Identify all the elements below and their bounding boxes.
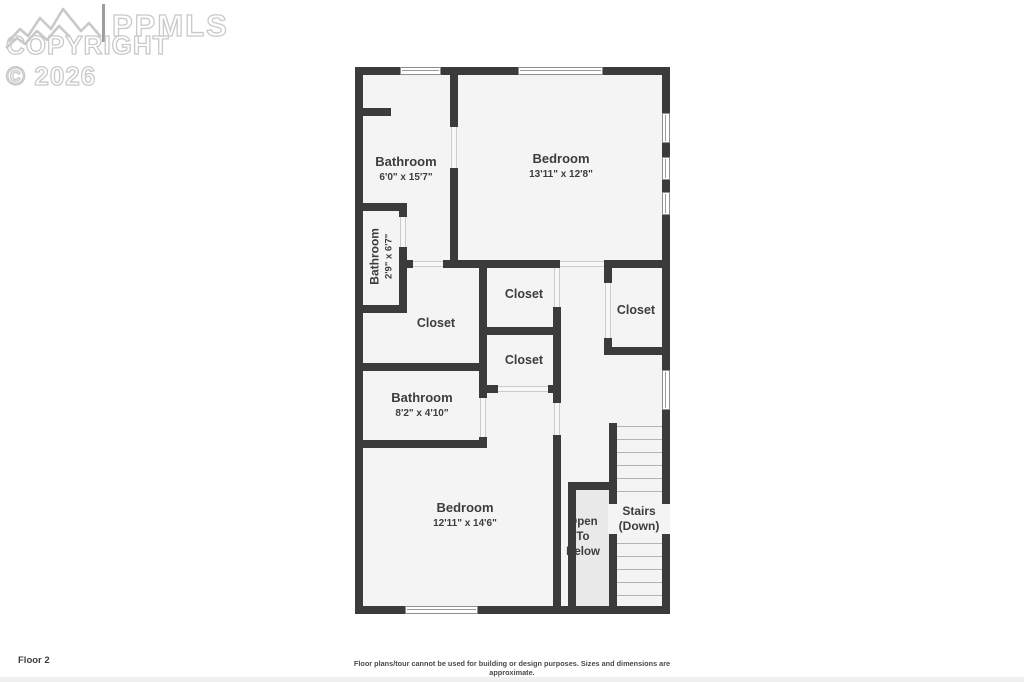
room-label-bedroom-top: Bedroom 13'11" x 12'8" [501, 152, 621, 180]
room-label-stairs: Stairs (Down) [608, 504, 670, 534]
wall-segment [355, 67, 363, 614]
window [518, 67, 603, 75]
wall-segment [399, 247, 407, 313]
door-opening [413, 261, 443, 267]
window [662, 113, 670, 143]
window [662, 157, 670, 180]
wall-segment [443, 260, 560, 268]
room-dimensions: 2'9" x 6'7" [384, 211, 395, 301]
room-label-closet-right: Closet [596, 303, 676, 317]
room-dimensions: 8'2" x 4'10" [362, 408, 482, 420]
door-opening [554, 403, 560, 435]
bottom-strip [0, 677, 1024, 682]
room-label-bathroom-top: Bathroom 6'0" x 15'7" [346, 155, 466, 183]
room-name: Bedroom [501, 152, 621, 167]
room-label-closet-top-middle: Closet [484, 287, 564, 301]
wall-segment [450, 75, 458, 127]
wall-segment [548, 385, 561, 393]
wall-segment [355, 108, 391, 116]
room-name: Bedroom [405, 501, 525, 516]
window [662, 370, 670, 410]
wall-segment [479, 327, 561, 335]
room-dimensions: 6'0" x 15'7" [346, 172, 466, 184]
room-name: Bathroom [362, 391, 482, 406]
disclaimer-text: Floor plans/tour cannot be used for buil… [347, 659, 677, 677]
door-opening [498, 386, 548, 392]
window [662, 192, 670, 215]
wall-segment [604, 263, 612, 283]
room-label-closet-left: Closet [396, 316, 476, 330]
room-dimensions: 12'11" x 14'6" [405, 518, 525, 530]
wall-segment [355, 440, 487, 448]
stairs-line: (Down) [608, 519, 670, 534]
wall-segment [355, 305, 407, 313]
room-label-bathroom-lower: Bathroom 8'2" x 4'10" [362, 391, 482, 419]
room-dimensions: 13'11" x 12'8" [501, 169, 621, 181]
room-label-bathroom-small: Bathroom 2'9" x 6'7" [369, 211, 396, 301]
window [400, 67, 441, 75]
stairs-line: Stairs [608, 504, 670, 519]
open-to-below-line: Below [553, 545, 613, 560]
wall-segment [355, 606, 670, 614]
open-to-below-line: Open [553, 515, 613, 530]
door-opening [400, 217, 406, 247]
room-label-open-to-below: Open To Below [553, 515, 613, 560]
room-name: Closet [396, 316, 476, 330]
window [405, 606, 478, 614]
room-name: Closet [484, 353, 564, 367]
door-opening [560, 261, 604, 267]
wall-segment [604, 347, 670, 355]
floor-plan-page: PPMLS COPYRIGHT © 2026 [0, 0, 1024, 682]
open-to-below-line: To [553, 530, 613, 545]
wall-segment [355, 363, 487, 371]
room-name: Bathroom [346, 155, 466, 170]
room-name: Closet [484, 287, 564, 301]
floor-label: Floor 2 [18, 655, 50, 666]
wall-segment [604, 260, 670, 268]
room-name: Bathroom [369, 211, 383, 301]
watermark-copyright: COPYRIGHT © 2026 [6, 30, 170, 92]
room-label-bedroom-bottom: Bedroom 12'11" x 14'6" [405, 501, 525, 529]
wall-segment [399, 208, 407, 217]
room-name: Closet [596, 303, 676, 317]
room-label-closet-middle: Closet [484, 353, 564, 367]
